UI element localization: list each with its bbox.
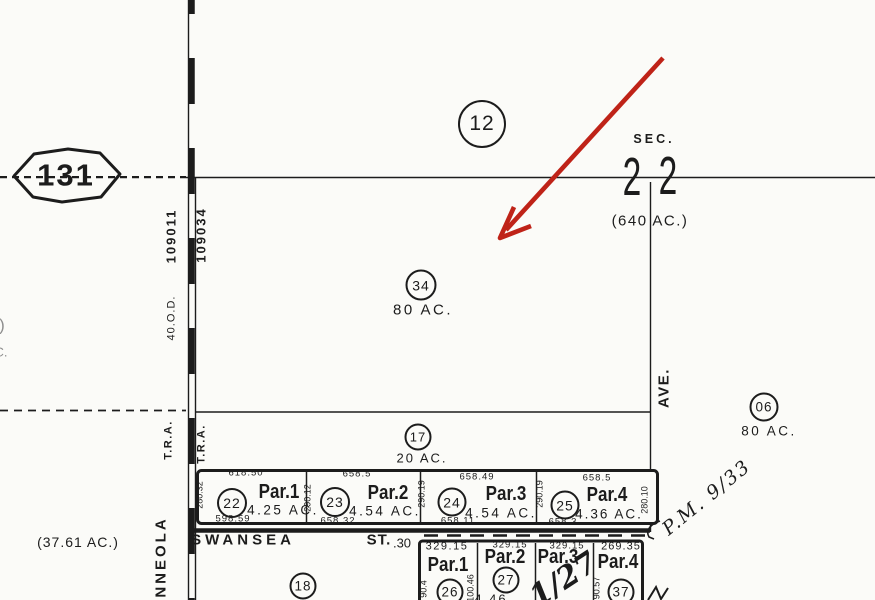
row1-p1-bottom-dim: 598.59 [215,514,250,524]
row1-p2-bottom-dim: 658.32 [320,516,355,526]
row2-p1-top-dim: 329.15 [426,542,469,553]
parcel-34-acreage: 80 AC. [393,303,453,318]
row1-p2-top-dim: 658.5 [343,469,372,479]
parcel-circle-18: 18 [290,573,317,600]
parcel-circle-24: 24 [438,488,467,517]
row1-p3-acreage: 4.54 AC. [465,506,537,520]
row1-p3-bottom-dim: 658.11 [441,516,475,526]
row1-p1-side-dim: 280.32 [196,481,205,509]
tra-label-right: T.R.A. [197,424,208,464]
street-width: .30 [393,537,411,550]
tract-number-left: 109011 [165,209,178,264]
section-acreage: (640 AC.) [612,214,689,229]
row2-p2-name: Par.2 [485,547,526,567]
row1-p2-name: Par.2 [368,483,409,503]
parcel-circle-23: 23 [320,487,350,517]
row1-p4-bottom-dim: 658.3 [549,517,578,527]
parcel-circle-26: 26 [437,579,464,600]
street-minneola-label: NNEOLA [154,516,169,597]
tra-label-left: T.R.A. [164,420,175,460]
assessor-parcel-map: 131 SEC. 2 2 (640 AC.) 12 34 80 AC. 17 2… [0,0,875,600]
map-linework [0,0,875,600]
row1-p3-side-dim: 290.19 [536,480,545,508]
row1-p4-left-dim: 290.19 [418,480,427,508]
row1-p2-acreage: 4.54 AC. [349,504,421,518]
handwritten-scribble [648,587,668,600]
tract-number-right: 109034 [195,207,208,262]
parcel-06-acreage: 80 AC. [741,424,797,438]
avenue-label: AVE. [657,368,672,408]
section-number-left: 2 [623,150,642,204]
edge-fragment-paren: ) [0,317,5,334]
row2-p2-acreage: 4.46 [474,593,507,600]
parcel-circle-37: 37 [608,579,635,600]
row1-p4-name: Par.4 [587,485,628,505]
row1-p3-name: Par.3 [486,484,527,504]
row2-p1-side-dim: 90.4 [420,580,429,598]
road-od-label: 40.O.D. [167,296,178,341]
row2-p4-name: Par.4 [598,552,639,572]
left-parcel-acreage: (37.61 AC.) [37,535,119,549]
section-label: SEC. [633,133,674,146]
street-suffix: ST. [367,533,392,548]
parcel-circle-27: 27 [493,567,520,594]
row2-p1-name: Par.1 [428,555,469,575]
parcel-circle-34: 34 [406,270,437,301]
row1-p4-top-dim: 658.5 [583,473,612,483]
route-badge-dash-overlay [0,176,186,178]
route-badge-number: 131 [37,160,95,191]
street-name: SWANSEA [191,533,295,548]
parcel-circle-06: 06 [750,393,779,422]
row1-p3-top-dim: 658.49 [459,472,494,482]
row1-p1-top-dim: 618.50 [228,468,263,478]
parcel-17-acreage: 20 AC. [396,452,447,465]
row1-p2-side-dim: 290.12 [304,484,313,512]
parcel-circle-17: 17 [405,424,432,451]
row1-right-dim: 280.10 [641,486,650,514]
row1-p1-name: Par.1 [259,482,300,502]
section-circle-12: 12 [458,100,506,148]
section-number-right: 2 [659,149,678,203]
row1-p4-acreage: 4.36 AC. [575,507,643,521]
edge-fragment-c: C. [0,346,8,359]
